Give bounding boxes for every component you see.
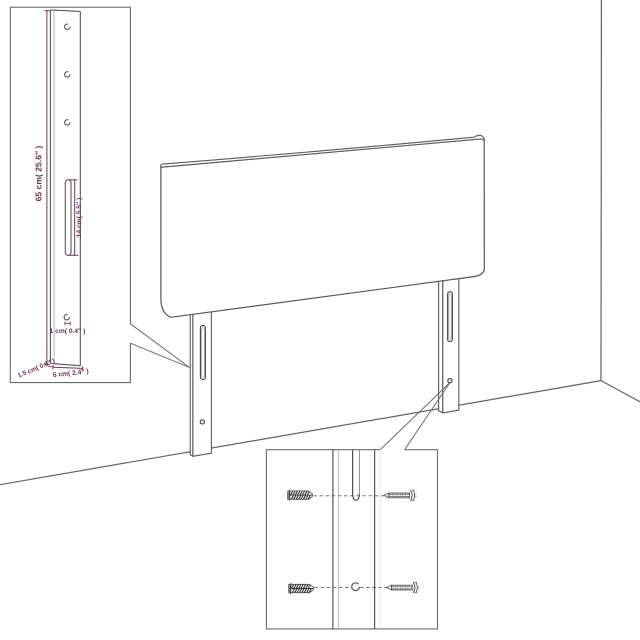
svg-text:14 cm( 5.5″ ): 14 cm( 5.5″ )	[76, 198, 83, 238]
svg-text:1 cm( 0.4″ ): 1 cm( 0.4″ )	[50, 328, 86, 335]
svg-text:65 cm( 25.6″ ): 65 cm( 25.6″ )	[34, 146, 44, 202]
